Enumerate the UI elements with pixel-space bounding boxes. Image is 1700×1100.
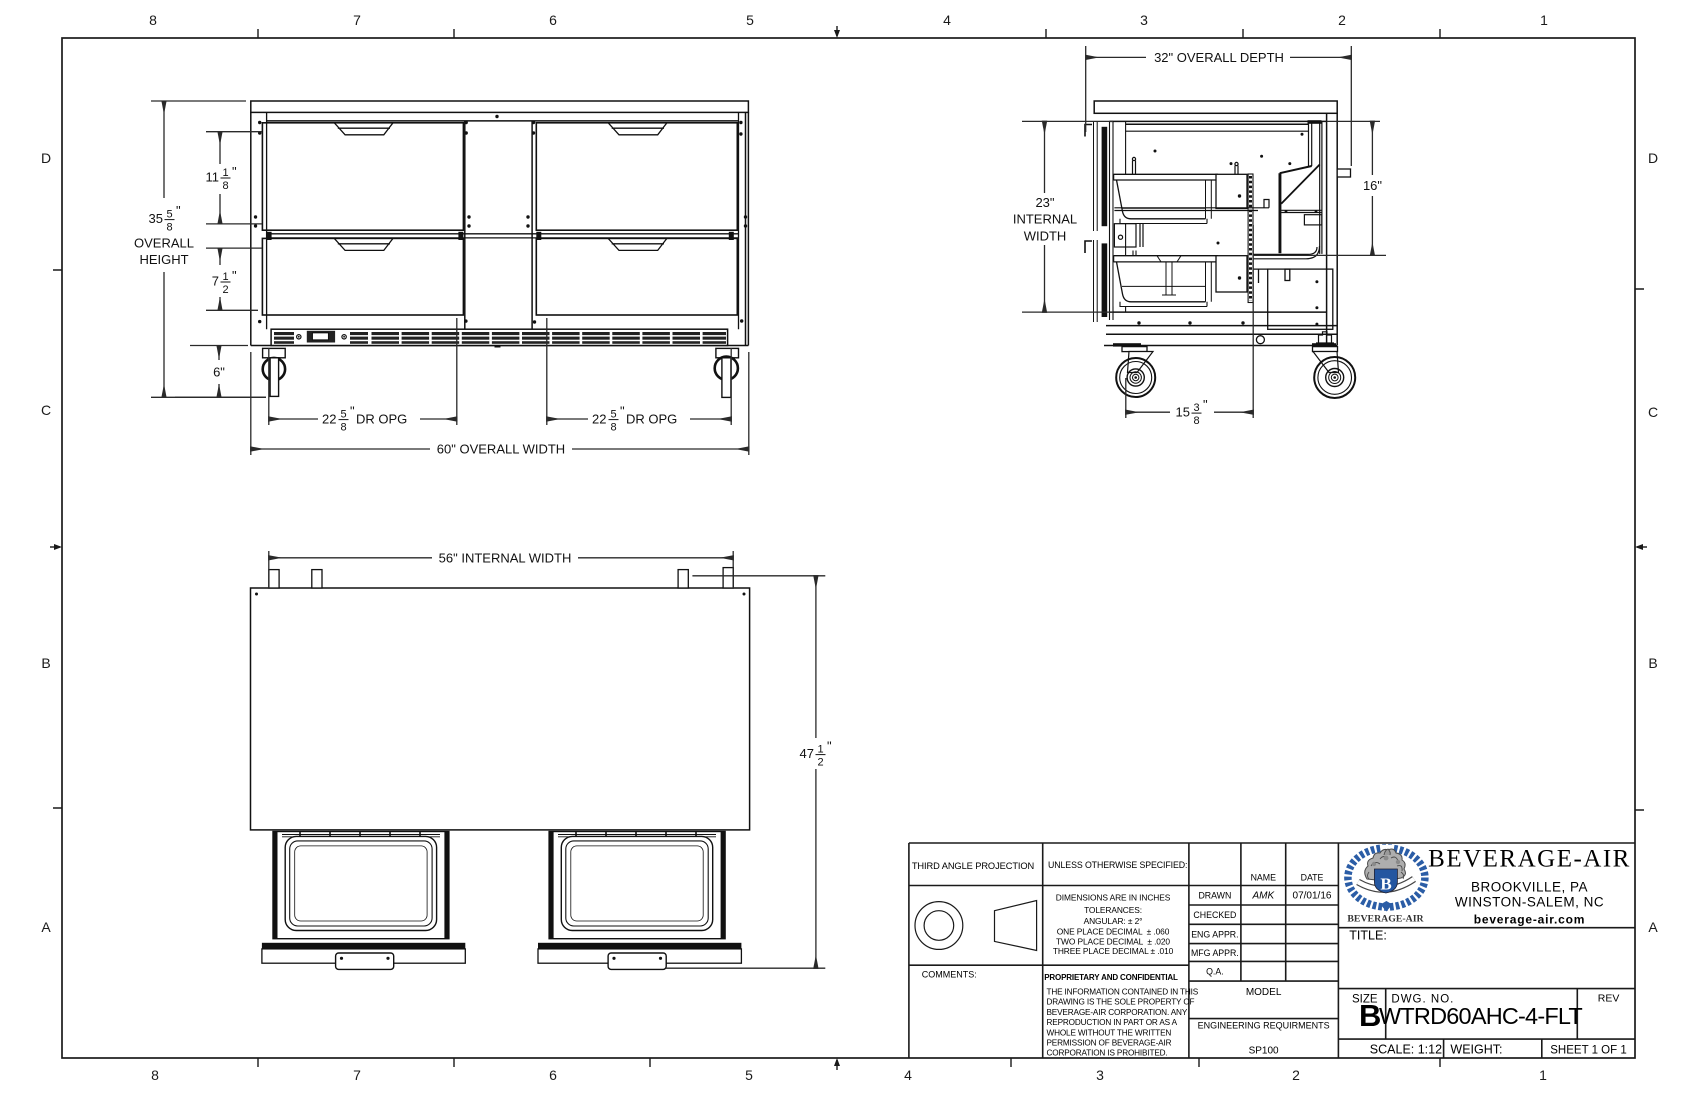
- svg-text:REV: REV: [1598, 993, 1620, 1005]
- svg-text:1: 1: [222, 271, 228, 283]
- svg-text:56" INTERNAL WIDTH: 56" INTERNAL WIDTH: [439, 550, 572, 565]
- svg-text:7: 7: [353, 12, 361, 28]
- svg-text:DRAWING IS THE SOLE PROPERTY O: DRAWING IS THE SOLE PROPERTY OF: [1047, 998, 1195, 1007]
- svg-text:B: B: [41, 655, 50, 671]
- svg-text:23": 23": [1035, 195, 1054, 210]
- svg-text:SP100: SP100: [1249, 1046, 1279, 1057]
- svg-text:2: 2: [1292, 1067, 1300, 1083]
- svg-text:THE INFORMATION CONTAINED IN T: THE INFORMATION CONTAINED IN THIS: [1047, 988, 1199, 997]
- svg-text:1: 1: [1539, 1067, 1547, 1083]
- svg-text:SCALE: 1:12: SCALE: 1:12: [1370, 1043, 1442, 1057]
- svg-text:5: 5: [166, 209, 172, 221]
- svg-text:8: 8: [1193, 415, 1199, 427]
- svg-text:COMMENTS:: COMMENTS:: [922, 970, 977, 980]
- svg-text:7: 7: [353, 1067, 361, 1083]
- svg-text:": ": [1203, 397, 1208, 412]
- svg-text:60" OVERALL WIDTH: 60" OVERALL WIDTH: [437, 442, 565, 457]
- svg-text:22: 22: [592, 412, 606, 427]
- svg-text:BEVERAGE-AIR: BEVERAGE-AIR: [1347, 914, 1424, 925]
- svg-text:DIMENSIONS ARE IN INCHES: DIMENSIONS ARE IN INCHES: [1056, 893, 1171, 903]
- svg-text:4: 4: [943, 12, 951, 28]
- svg-text:NAME: NAME: [1251, 873, 1277, 883]
- svg-text:WINSTON-SALEM, NC: WINSTON-SALEM, NC: [1455, 895, 1604, 910]
- svg-text:8: 8: [166, 222, 172, 234]
- svg-text:": ": [232, 164, 237, 179]
- svg-text:DRAWN: DRAWN: [1198, 891, 1231, 901]
- svg-text:ONE PLACE DECIMAL ± .060: ONE PLACE DECIMAL ± .060: [1057, 926, 1170, 936]
- svg-text:Q.A.: Q.A.: [1206, 967, 1224, 977]
- svg-text:35: 35: [149, 211, 163, 226]
- svg-text:DATE: DATE: [1301, 873, 1324, 883]
- svg-text:THIRD ANGLE PROJECTION: THIRD ANGLE PROJECTION: [912, 861, 1034, 871]
- svg-text:ENGINEERING REQUIRMENTS: ENGINEERING REQUIRMENTS: [1198, 1021, 1330, 1031]
- svg-text:WTRD60AHC-4-FLT: WTRD60AHC-4-FLT: [1379, 1003, 1582, 1029]
- svg-text:beverage-air.com: beverage-air.com: [1474, 913, 1586, 927]
- svg-text:PERMISSION OF BEVERAGE-AIR: PERMISSION OF BEVERAGE-AIR: [1047, 1039, 1172, 1048]
- svg-text:": ": [176, 203, 181, 218]
- svg-text:PROPRIETARY AND CONFIDENTIAL: PROPRIETARY AND CONFIDENTIAL: [1044, 973, 1178, 982]
- svg-text:4: 4: [904, 1067, 912, 1083]
- svg-text:BEVERAGE-AIR CORPORATION. ANY: BEVERAGE-AIR CORPORATION. ANY: [1047, 1008, 1188, 1017]
- svg-text:A: A: [1648, 919, 1658, 935]
- svg-text:D: D: [1648, 150, 1658, 166]
- svg-text:CORPORATION IS PROHIBITED.: CORPORATION IS PROHIBITED.: [1047, 1049, 1168, 1058]
- svg-text:OVERALL: OVERALL: [134, 236, 194, 251]
- svg-text:1: 1: [222, 167, 228, 179]
- svg-text:B: B: [1380, 875, 1391, 894]
- svg-text:2: 2: [222, 284, 228, 296]
- svg-text:TOLERANCES:: TOLERANCES:: [1084, 905, 1142, 915]
- svg-text:22: 22: [322, 412, 336, 427]
- svg-text:CHECKED: CHECKED: [1193, 910, 1236, 920]
- svg-text:WEIGHT:: WEIGHT:: [1450, 1043, 1502, 1057]
- svg-text:6": 6": [213, 365, 225, 380]
- svg-text:WHOLE WITHOUT THE WRITTEN: WHOLE WITHOUT THE WRITTEN: [1047, 1028, 1172, 1037]
- svg-text:1: 1: [817, 744, 823, 756]
- svg-text:BEVERAGE-AIR: BEVERAGE-AIR: [1428, 846, 1631, 873]
- svg-text:THREE PLACE DECIMAL ± .010: THREE PLACE DECIMAL ± .010: [1053, 946, 1174, 956]
- svg-text:SHEET 1 OF 1: SHEET 1 OF 1: [1550, 1045, 1626, 1057]
- svg-text:TWO PLACE DECIMAL ± .020: TWO PLACE DECIMAL ± .020: [1056, 936, 1170, 946]
- svg-text:8: 8: [151, 1067, 159, 1083]
- svg-text:47: 47: [800, 746, 814, 761]
- svg-text:3: 3: [1140, 12, 1148, 28]
- svg-text:3: 3: [1096, 1067, 1104, 1083]
- svg-text:UNLESS OTHERWISE SPECIFIED:: UNLESS OTHERWISE SPECIFIED:: [1048, 860, 1187, 870]
- svg-text:TITLE:: TITLE:: [1349, 929, 1387, 943]
- svg-text:7: 7: [212, 274, 219, 289]
- svg-text:16": 16": [1363, 178, 1382, 193]
- svg-text:6: 6: [549, 12, 557, 28]
- svg-text:D: D: [41, 150, 51, 166]
- svg-text:2: 2: [1338, 12, 1346, 28]
- svg-text:07/01/16: 07/01/16: [1293, 891, 1332, 902]
- svg-text:": ": [232, 268, 237, 283]
- svg-text:INTERNAL: INTERNAL: [1013, 212, 1077, 227]
- svg-text:B: B: [1648, 655, 1657, 671]
- svg-text:A: A: [41, 919, 51, 935]
- svg-text:MODEL: MODEL: [1246, 987, 1282, 998]
- svg-text:5: 5: [745, 1067, 753, 1083]
- svg-text:5: 5: [340, 409, 346, 421]
- svg-text:2: 2: [817, 757, 823, 769]
- svg-text:ANGULAR: ± 2°: ANGULAR: ± 2°: [1084, 916, 1143, 926]
- svg-text:6: 6: [549, 1067, 557, 1083]
- svg-text:REPRODUCTION IN PART OR AS A: REPRODUCTION IN PART OR AS A: [1047, 1018, 1178, 1027]
- svg-text:HEIGHT: HEIGHT: [139, 252, 188, 267]
- svg-text:ENG APPR.: ENG APPR.: [1191, 929, 1238, 939]
- svg-text:32" OVERALL DEPTH: 32" OVERALL DEPTH: [1154, 50, 1284, 65]
- svg-text:": ": [620, 404, 625, 419]
- svg-text:8: 8: [149, 12, 157, 28]
- svg-text:DR OPG: DR OPG: [356, 412, 407, 427]
- svg-text:15: 15: [1176, 405, 1190, 420]
- svg-text:MFG APPR.: MFG APPR.: [1191, 948, 1239, 958]
- svg-text:DR OPG: DR OPG: [626, 412, 677, 427]
- svg-text:5: 5: [746, 12, 754, 28]
- svg-text:BROOKVILLE, PA: BROOKVILLE, PA: [1471, 880, 1588, 895]
- svg-text:": ": [827, 739, 832, 754]
- svg-text:8: 8: [222, 180, 228, 192]
- svg-text:WIDTH: WIDTH: [1024, 229, 1067, 244]
- svg-text:11: 11: [206, 170, 220, 185]
- svg-text:5: 5: [610, 409, 616, 421]
- svg-text:": ": [350, 404, 355, 419]
- svg-text:C: C: [1648, 404, 1658, 420]
- svg-text:1: 1: [1540, 12, 1548, 28]
- svg-text:8: 8: [610, 422, 616, 434]
- svg-text:8: 8: [340, 422, 346, 434]
- svg-text:AMK: AMK: [1251, 891, 1275, 902]
- svg-text:C: C: [41, 402, 51, 418]
- svg-text:3: 3: [1193, 402, 1199, 414]
